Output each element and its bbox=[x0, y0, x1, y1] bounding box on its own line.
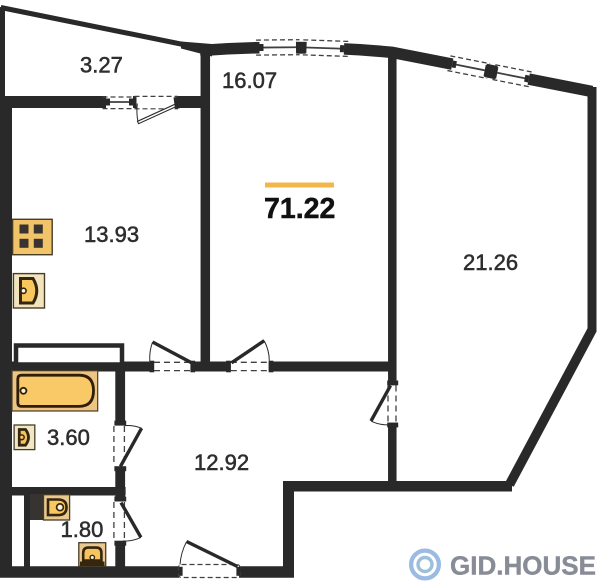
svg-text:13.93: 13.93 bbox=[84, 222, 139, 247]
svg-text:12.92: 12.92 bbox=[194, 450, 249, 475]
svg-text:16.07: 16.07 bbox=[222, 68, 277, 93]
svg-text:71.22: 71.22 bbox=[264, 193, 335, 225]
svg-text:GID.HOUSE: GID.HOUSE bbox=[450, 551, 596, 581]
svg-text:3.27: 3.27 bbox=[80, 53, 123, 78]
svg-text:21.26: 21.26 bbox=[463, 250, 518, 275]
svg-text:1.80: 1.80 bbox=[61, 517, 104, 542]
svg-text:3.60: 3.60 bbox=[47, 425, 90, 450]
